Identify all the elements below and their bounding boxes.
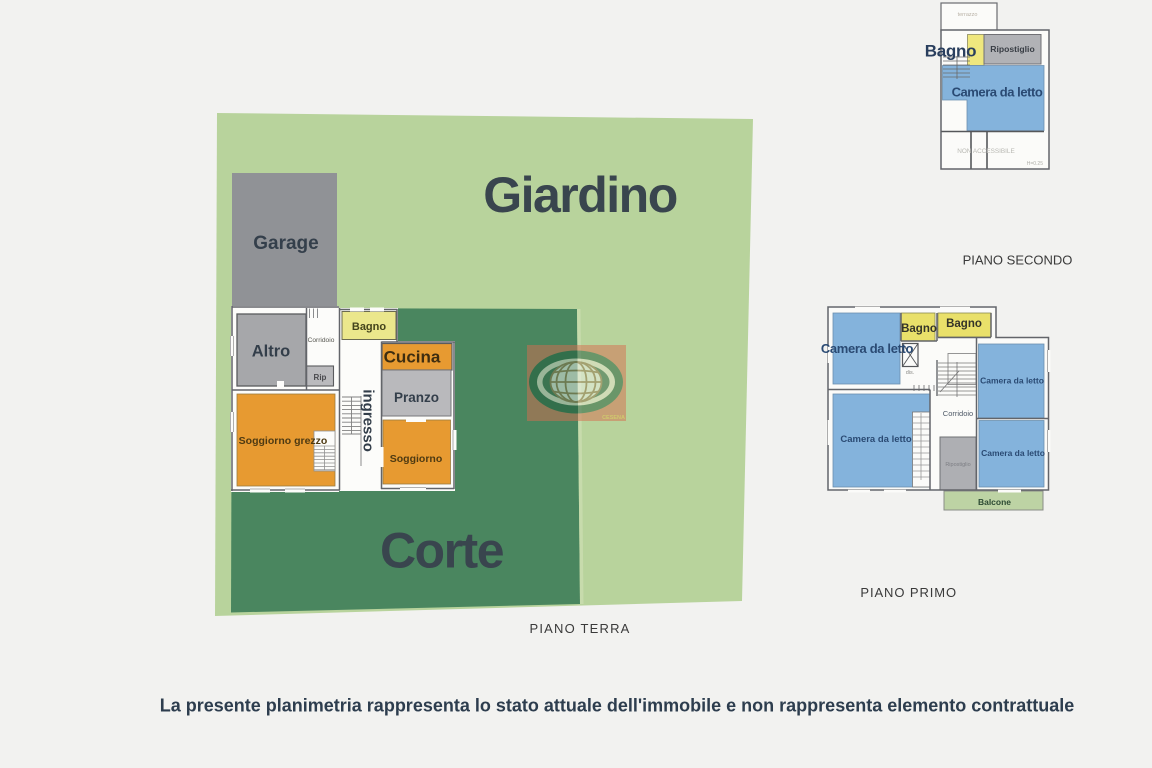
- svg-text:terrazzo: terrazzo: [958, 12, 978, 18]
- svg-text:NON ACCESSIBILE: NON ACCESSIBILE: [957, 148, 1015, 155]
- svg-text:Balcone: Balcone: [978, 497, 1011, 507]
- svg-text:PIANO TERRA: PIANO TERRA: [529, 621, 630, 636]
- svg-text:PIANO PRIMO: PIANO PRIMO: [860, 585, 957, 600]
- svg-text:Camera da letto: Camera da letto: [980, 376, 1044, 386]
- svg-text:Altro: Altro: [252, 343, 291, 361]
- svg-text:Corridoio: Corridoio: [308, 337, 335, 344]
- svg-text:ingresso: ingresso: [360, 389, 377, 452]
- svg-text:PIANO SECONDO: PIANO SECONDO: [963, 253, 1073, 268]
- svg-text:Cucina: Cucina: [384, 348, 441, 367]
- svg-text:Garage: Garage: [253, 233, 318, 254]
- svg-text:Corridoio: Corridoio: [943, 409, 973, 418]
- svg-text:dis.: dis.: [906, 370, 915, 376]
- svg-text:La presente planimetria rappre: La presente planimetria rappresenta lo s…: [160, 696, 1075, 716]
- svg-text:Soggiorno: Soggiorno: [390, 453, 443, 465]
- svg-text:Bagno: Bagno: [901, 323, 937, 335]
- svg-text:Rip: Rip: [314, 373, 327, 382]
- svg-text:Corte: Corte: [380, 523, 504, 579]
- svg-text:Camera da letto: Camera da letto: [821, 341, 914, 356]
- svg-text:Camera da letto: Camera da letto: [952, 85, 1043, 100]
- svg-text:CESENA: CESENA: [602, 415, 625, 421]
- svg-text:Camera da letto: Camera da letto: [840, 434, 911, 445]
- svg-text:Bagno: Bagno: [925, 42, 976, 61]
- svg-text:Ripostiglio: Ripostiglio: [990, 44, 1034, 54]
- svg-text:H=0.25: H=0.25: [1027, 161, 1043, 167]
- svg-text:Soggiorno grezzo: Soggiorno grezzo: [239, 435, 328, 447]
- svg-text:Bagno: Bagno: [352, 321, 387, 333]
- svg-text:Ripostiglio: Ripostiglio: [945, 462, 970, 468]
- svg-text:Pranzo: Pranzo: [394, 390, 439, 405]
- svg-text:Camera da letto: Camera da letto: [981, 448, 1045, 458]
- svg-text:Bagno: Bagno: [946, 318, 982, 330]
- svg-text:Giardino: Giardino: [483, 167, 677, 223]
